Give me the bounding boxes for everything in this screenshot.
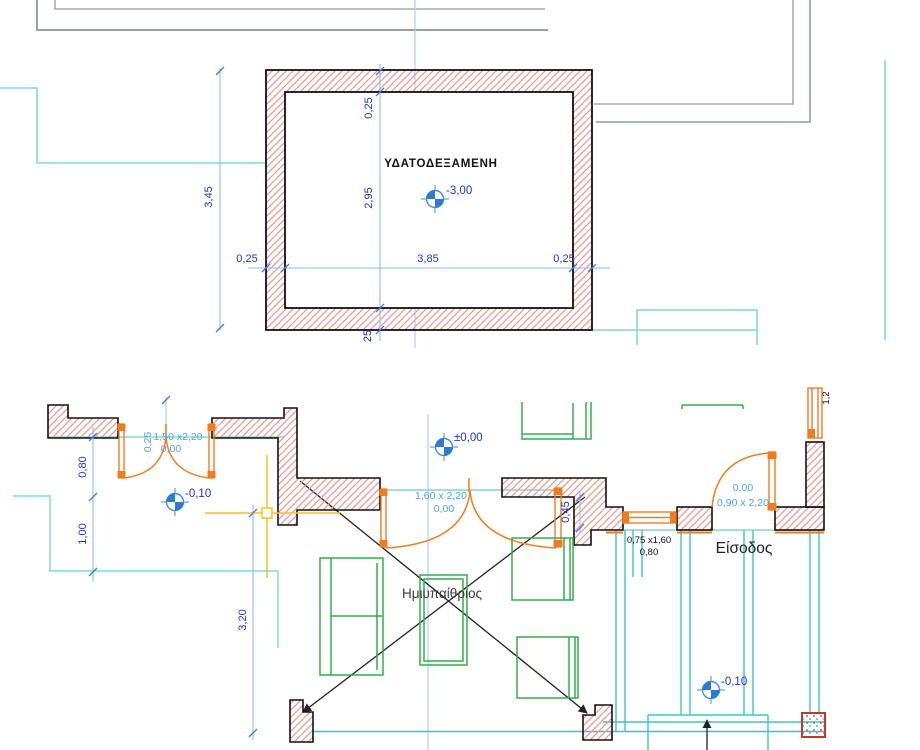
level-value-minus10-left: -0,10: [185, 488, 211, 500]
dim-left-b: 1,00: [77, 523, 89, 544]
furniture-green: [320, 402, 743, 698]
door-entrance-size: 0,90 x 2,20: [717, 497, 769, 509]
level-value-zero: ±0,00: [454, 432, 483, 444]
door-left-leaf-a: [119, 424, 124, 478]
tank-room-label: ΥΔΑΤΟΔΕΞΑΜΕΝΗ: [384, 158, 498, 170]
door-spec-texts: 0,25 1,50 x2,20 0,00 1,60 x 2,20 0,00 0,…: [142, 391, 832, 558]
door-left-tag: 0,25: [142, 432, 154, 453]
tank-outer-dimension: 3,45: [203, 67, 224, 332]
dim-tank-width: 3,85: [417, 253, 438, 265]
wall-entrance-pier: [677, 507, 712, 530]
plan-left-dimension: 0,80 1,00: [77, 427, 97, 582]
window-entrance-sill: 0,80: [640, 547, 659, 558]
door-center-sill: 0,00: [434, 503, 455, 515]
dim-tank-bottom-wall: 25: [362, 330, 374, 342]
level-marker-minus10-left: -0,10: [161, 488, 211, 516]
window-side-size: 1,2: [821, 391, 832, 404]
dim-step: 0,45: [560, 501, 572, 522]
door-left-sill: 0,00: [161, 443, 182, 455]
wall-entrance-foot: [775, 507, 824, 530]
dim-left-a: 0,80: [77, 456, 89, 477]
cad-drawing-canvas[interactable]: ΥΔΑΤΟΔΕΞΑΜΕΝΗ 0,25 2,95 25 0,25 3,85 0,2…: [0, 0, 920, 750]
dim-tank-inner-height: 2,95: [363, 187, 375, 208]
plan-step-dimension: 0,45: [560, 492, 584, 533]
level-value-minus10-right: -0,10: [721, 676, 747, 688]
dim-tank-right-wall: 0,25: [553, 253, 574, 265]
wall-mid-left-pier: [212, 408, 380, 525]
dim-left-c: 3,20: [237, 609, 249, 630]
joinery-orange: [119, 388, 824, 548]
door-entrance-leaf: [769, 452, 775, 510]
level-marker-zero: ±0,00: [430, 432, 483, 461]
wall-entrance-tower: [806, 442, 824, 507]
bench-line: [682, 405, 743, 409]
armchair-bottom-right: [517, 637, 578, 698]
door-center-leaf-a: [381, 489, 386, 547]
armchair-top-cropped: [522, 402, 591, 439]
dim-tank-left-wall: 0,25: [236, 253, 257, 265]
room-label-entrance: Είσοδος: [716, 540, 773, 557]
window-entrance-size: 0,75 x1,60: [627, 535, 671, 546]
column-concrete: [802, 713, 825, 737]
door-left-size: 1,50 x2,20: [153, 431, 202, 443]
level-marker-minus10-right: -0,10: [697, 676, 747, 704]
room-label-semi-open: Ημιυπαίθριος: [402, 586, 483, 601]
wall-bottom-right-pier: [583, 705, 612, 740]
door-entrance-sill: 0,00: [733, 482, 754, 494]
dim-tank-outer-height: 3,45: [203, 186, 215, 207]
door-center-size: 1,60 x 2,20: [415, 490, 467, 502]
level-value-tank: -3,00: [446, 185, 472, 197]
wall-top-left: [48, 405, 118, 438]
dim-tank-wall-top: 0,25: [363, 97, 375, 118]
